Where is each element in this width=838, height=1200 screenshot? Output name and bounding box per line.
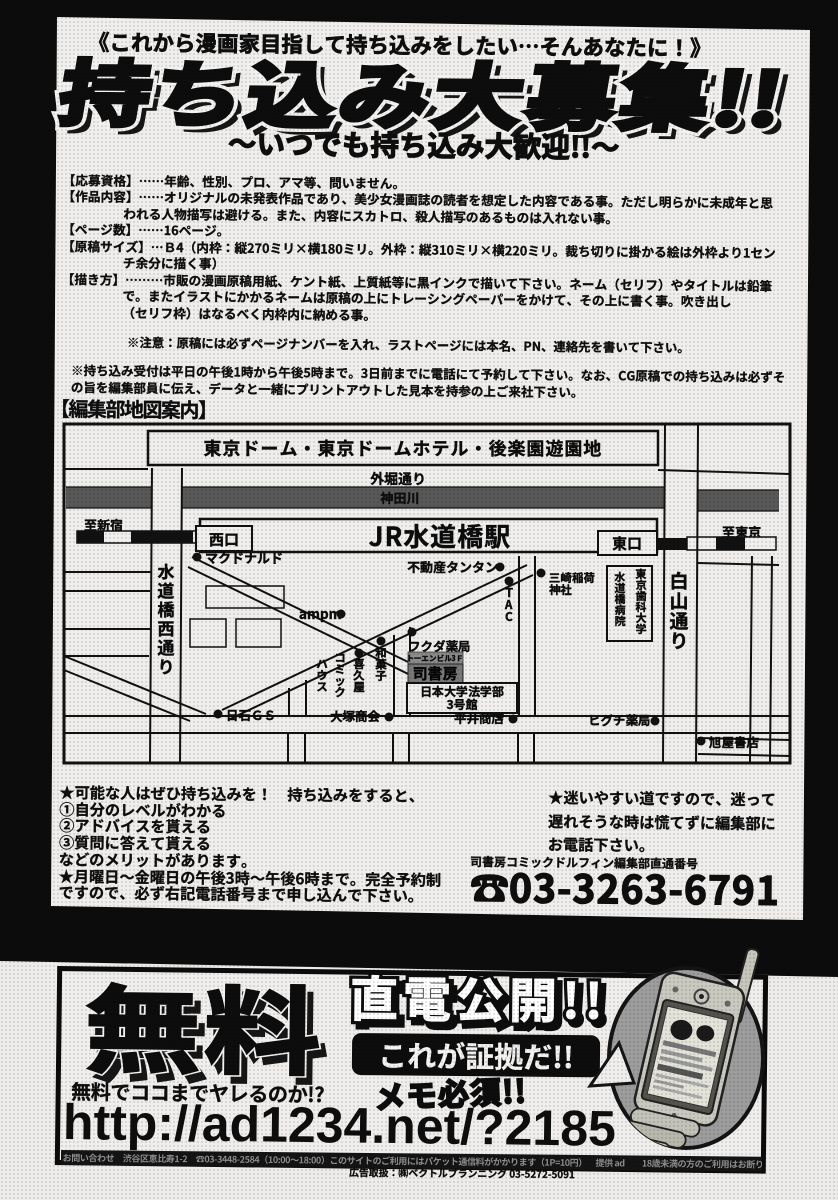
svg-text:和菓子: 和菓子 xyxy=(375,645,387,684)
svg-text:東京ドーム・東京ドームホテル・後楽園遊園地: 東京ドーム・東京ドームホテル・後楽園遊園地 xyxy=(204,435,603,461)
svg-text:外堀通り: 外堀通り xyxy=(370,469,426,489)
svg-text:ampm: ampm xyxy=(299,603,342,623)
svg-text:神田川: 神田川 xyxy=(379,488,419,507)
svg-text:神社: 神社 xyxy=(549,582,572,598)
svg-text:不動産タンタン: 不動産タンタン xyxy=(407,557,498,576)
svg-text:喜久屋: 喜久屋 xyxy=(352,656,365,695)
svg-text:ヒグチ薬局: ヒグチ薬局 xyxy=(588,710,651,729)
svg-text:西口: 西口 xyxy=(209,529,239,550)
svg-text:白山通り: 白山通り xyxy=(669,567,688,654)
svg-text:司書房: 司書房 xyxy=(412,663,457,684)
svg-text:旭屋書店: 旭屋書店 xyxy=(709,732,759,751)
svg-text:マクドナルド: マクドナルド xyxy=(205,548,283,567)
svg-text:無料: 無料 xyxy=(83,964,324,1089)
svg-text:JR水道橋駅: JR水道橋駅 xyxy=(369,517,512,554)
svg-text:東口: 東口 xyxy=(612,533,642,554)
svg-text:コミック: コミック xyxy=(334,650,346,701)
svg-text:水道橋病院: 水道橋病院 xyxy=(615,569,626,629)
svg-text:TAC: TAC xyxy=(505,584,513,625)
svg-text:日石ＧＳ: 日石ＧＳ xyxy=(226,705,276,724)
svg-text:ハウス: ハウス xyxy=(316,656,328,695)
svg-text:平井商店: 平井商店 xyxy=(454,708,504,727)
svg-text:大塚商会: 大塚商会 xyxy=(330,706,381,725)
svg-text:メモ必須!!: メモ必須!! xyxy=(373,1070,528,1117)
svg-text:水道橋西通り: 水道橋西通り xyxy=(158,558,176,678)
svg-text:東京歯科大学: 東京歯科大学 xyxy=(636,566,648,637)
